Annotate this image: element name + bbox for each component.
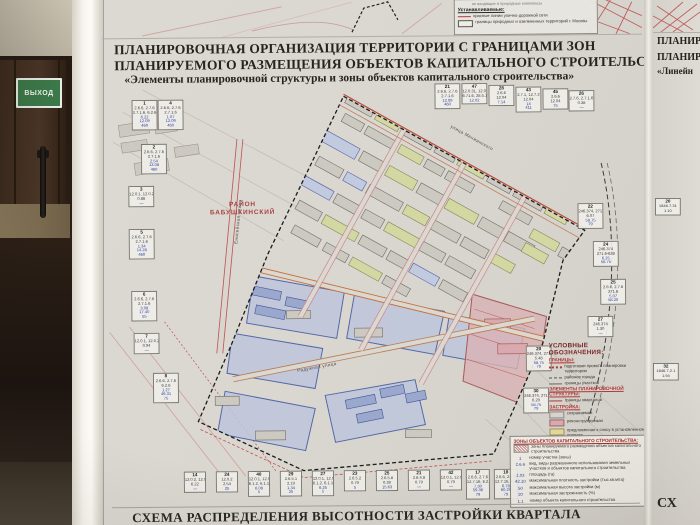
info-cell-row: 15.63 [377, 485, 397, 490]
info-cell: 24246.374271.6-6386.2556.75 [593, 241, 619, 267]
info-cell: 22.6.6, 2.7.62.7.1.62.5413.08460 [141, 144, 167, 175]
photo-of-planning-poster: ВЫХОД не входящие в природные комплексы … [0, 0, 700, 525]
chip-gray-symbol [549, 411, 564, 418]
legend-zones-items: зоны планируемого размещения объектов ка… [514, 444, 649, 504]
info-cell-row: 460 [130, 253, 154, 258]
dash-dot-symbol [549, 377, 562, 378]
info-cell-row: — [570, 105, 594, 110]
legend-item: районов города [549, 374, 645, 379]
info-cell: 452.6.612.0475 [542, 88, 568, 110]
legend-item-label: сохраняемая [567, 411, 593, 416]
info-cell-row: — [409, 485, 429, 490]
info-cell-row: 25 [217, 486, 237, 491]
info-cell-row: 79 [467, 493, 489, 498]
chip-pink-symbol [549, 420, 564, 427]
right-poster: ПЛАНИР ПЛАНИР «Линейн 201846.7.311.10321… [653, 0, 700, 525]
red-dotted-symbol [549, 366, 562, 368]
info-cell: 27246.3741.30— [587, 316, 613, 338]
info-cell-row: 460 [142, 168, 166, 173]
info-cell-row: — [185, 487, 205, 492]
exit-sign: ВЫХОД [16, 78, 62, 108]
legend-item: подготовки проекта планировки территории [549, 364, 645, 374]
info-cell: 212.6.4.80.79— [408, 470, 430, 492]
info-cell: 42.6.6, 2.7.62.7.1.61.0712.09460 [158, 100, 184, 131]
legend-symbol-value: 20 [514, 492, 527, 497]
board-edge [72, 0, 104, 525]
legend-symbol-value: 42.10 [514, 479, 527, 484]
legend-item-label: зоны планируемого размещения объектов ка… [531, 444, 648, 454]
legend-symbol-value: 1.03 [514, 473, 527, 478]
info-cell: 252.6.6, 2.7.6271.65.0758.20 [600, 279, 626, 305]
poster-gap [644, 0, 653, 525]
legend-item: зоны планируемого размещения объектов ка… [514, 444, 648, 454]
legend-item-label: вид, виды разрешенного использования зем… [529, 461, 648, 471]
floor-lower [0, 462, 74, 525]
info-cell-row: — [589, 331, 613, 336]
legend-item-label: районов города [564, 375, 595, 380]
legend-main-items: ГРАНИЦЫ:подготовки проекта планировки те… [549, 358, 646, 438]
info-cell-row: 5 [249, 491, 269, 496]
info-cell: 212.6.6, 2.7.62.7.1.612.09460 [434, 83, 460, 109]
red-line-symbol [549, 401, 562, 402]
legend-section-title: ЗАСТРОЙКА: [549, 405, 645, 411]
info-cell: 1412.0.2, 12.0.46.22— [184, 471, 206, 493]
legend-zones: ЗОНЫ ОБЪЕКТОВ КАПИТАЛЬНОГО СТРОИТЕЛЬСТВА… [510, 435, 653, 509]
legend-item-label: подготовки проекта планировки территории [564, 364, 645, 374]
info-cell-row: 79 [524, 407, 548, 412]
hatch-symbol [514, 445, 529, 453]
legend-item: 2.6.6вид, виды разрешенного использовани… [514, 461, 648, 471]
info-cell-row: 460 [159, 124, 183, 129]
poster-content: не входящие в природные комплексы Устана… [102, 0, 647, 525]
main-poster: не входящие в природные комплексы Устана… [104, 0, 644, 525]
info-cell: 232.6.5.20.795 [344, 470, 366, 492]
info-cell: 321846.7.2.11.94 [653, 363, 679, 380]
legend-item-label: номер участка (зоны) [529, 455, 571, 460]
info-cell: 2412.0.22.5425 [216, 471, 238, 493]
bottom-scheme-title: СХЕМА РАСПРЕДЕЛЕНИЯ ВЫСОТНОСТИ ЗАСТРОЙКИ… [132, 506, 581, 525]
info-cell: 12.6.6, 2.7.62.7.1.6, 6.2.66.2212.09460 [132, 100, 158, 131]
legend-section-title: ЭЛЕМЕНТЫ ПЛАНИРОВОЧНОЙ СТРУКТУРЫ: [549, 387, 645, 398]
thin-line-symbol [549, 383, 562, 384]
legend-item-label: максимальная застроенность (%) [530, 491, 596, 496]
info-cell-row: 25 [281, 490, 301, 495]
info-cell: 712.0.1, 12.0.20.94— [134, 333, 160, 355]
info-cell: 30246.374, 271.66.2058.7579 [523, 387, 549, 413]
info-cell: 172.6.6, 2.7.612.7.16, 6.2.67.3059.3679 [466, 469, 490, 500]
info-cell: 282.6.612.047.14 [488, 85, 514, 107]
legend-main: УСЛОВНЫЕ ОБОЗНАЧЕНИЯ: ГРАНИЦЫ:подготовки… [549, 342, 646, 439]
info-cell-row: 7.14 [490, 100, 514, 105]
door-handle [40, 146, 46, 218]
info-cell: 292.6.5.12.191.3425 [280, 471, 302, 497]
info-cell: 82.6.6, 2.7.66.2.61.2746.3175 [153, 373, 179, 404]
info-cell-row: 460 [133, 124, 157, 129]
info-cell: 4012.0.1, 12.0.26.1.2, 6.1.16.085 [248, 471, 270, 497]
info-cell: 22246.374, 271.66.0758.7579 [577, 203, 603, 229]
info-cell-row: — [441, 485, 461, 490]
street-label: Енисейская улица [233, 199, 242, 244]
info-cell-row: 56.75 [594, 261, 618, 266]
info-cell-row: 12.02 [462, 98, 486, 103]
info-cell-row: 1.94 [654, 374, 678, 378]
info-cell-row: 55 [132, 315, 156, 320]
street-label: Радужная улица [297, 361, 337, 373]
info-cell-row: 5 [345, 485, 365, 490]
exit-sign-label: ВЫХОД [24, 90, 53, 97]
legend-item-label: границы участков [565, 381, 600, 386]
info-cell: 262.7.6, 2.7.1.60.38— [569, 90, 595, 112]
legend-symbol-value: 50 [514, 486, 527, 491]
legend-item-label: максимальная высота застройки (м) [529, 485, 600, 490]
info-cell-row: 1.10 [656, 209, 680, 213]
info-cell-row: 79 [579, 223, 603, 228]
info-cell: 62.6.6, 2.7.62.7.1.63.0817.4055 [131, 291, 157, 322]
floor [0, 204, 70, 238]
info-cell: 2712.0.1, 12.0.26.1.2, 6.1.16.255 [312, 470, 334, 496]
info-cell: 4712.0.31, 12.0.26.71.6, 28.5.112.02 [461, 83, 487, 105]
legend-main-heading: УСЛОВНЫЕ ОБОЗНАЧЕНИЯ: [549, 342, 645, 357]
info-cell: 52.6.6, 2.7.62.7.1.61.3414.28460 [129, 229, 155, 260]
street-label: улица Менжинского [450, 124, 494, 152]
legend-item: границы кварталов [549, 398, 645, 403]
legend-item-label: границы кварталов [565, 398, 602, 403]
legend-symbol-value: 1 [514, 455, 527, 460]
info-cell-row: 75 [544, 104, 568, 109]
info-cell-row: 79 [527, 365, 551, 370]
legend-symbol-value: 2.6.6 [514, 462, 527, 467]
info-cell-row: — [135, 348, 159, 353]
info-cell: 201846.7.311.10 [655, 198, 681, 215]
legend-item-label: максимальная плотность застройки (тыс.кв… [529, 478, 624, 483]
info-cell: 312.0.1, 12.0.20.86— [128, 186, 154, 208]
legend-item: границы участков [549, 380, 645, 385]
info-cell-row: 58.20 [601, 298, 625, 303]
info-cell-row: 411 [517, 106, 541, 111]
info-cell: 252.6.5.80.3915.63 [376, 470, 398, 492]
info-cell-row: 75 [154, 397, 178, 402]
right-poster-bottom-title: СХ [657, 496, 677, 512]
right-poster-cells: 201846.7.311.10321846.7.2.11.94 [653, 0, 700, 525]
legend-item: сохраняемая [549, 411, 645, 419]
info-cell-row: 5 [313, 490, 333, 495]
legend-item-label: реконструируемая [567, 419, 603, 424]
info-cell: 432.7.1, 12.7.212.0414411 [515, 87, 541, 113]
legend-item-label: площадь (га) [529, 472, 554, 477]
info-cell: 4212.0.1, 12.0.20.79— [440, 469, 462, 491]
info-cell-row: — [129, 201, 153, 206]
info-cell-row: 460 [436, 103, 460, 108]
